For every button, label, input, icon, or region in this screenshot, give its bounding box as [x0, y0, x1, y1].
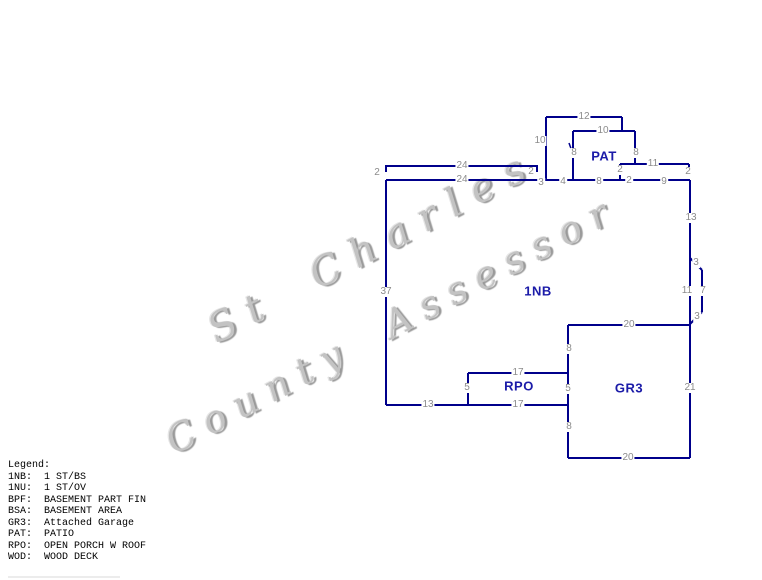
- legend-desc: WOOD DECK: [44, 552, 98, 564]
- legend-row: PAT:PATIO: [8, 529, 146, 541]
- dimension-label: 17: [511, 368, 524, 378]
- legend-row: WOD:WOOD DECK: [8, 552, 146, 564]
- dimension-label: 8: [565, 344, 573, 354]
- legend-desc: PATIO: [44, 529, 74, 541]
- legend-row: RPO:OPEN PORCH W ROOF: [8, 541, 146, 553]
- dimension-label: 13: [421, 400, 434, 410]
- dimension-label: 2: [616, 165, 624, 175]
- dimension-label: 37: [379, 287, 392, 297]
- legend-abbr: BSA:: [8, 506, 44, 518]
- dimension-label: 2: [684, 167, 692, 177]
- legend-desc: 1 ST/BS: [44, 472, 86, 484]
- legend-abbr: PAT:: [8, 529, 44, 541]
- dimension-label: 17: [511, 400, 524, 410]
- legend-desc: 1 ST/OV: [44, 483, 86, 495]
- dimension-label: 5: [564, 384, 572, 394]
- area-label: GR3: [613, 381, 645, 396]
- dimension-label: 3: [693, 312, 701, 322]
- legend-row: GR3:Attached Garage: [8, 518, 146, 530]
- dimension-label: 20: [622, 320, 635, 330]
- dimension-label: 3: [537, 178, 545, 188]
- dimension-label: 8: [565, 422, 573, 432]
- dimension-label: 11: [647, 159, 659, 169]
- dimension-label: 2: [373, 168, 381, 178]
- dimension-label: 24: [455, 175, 468, 185]
- legend-entries: 1NB:1 ST/BS1NU:1 ST/OVBPF:BASEMENT PART …: [8, 472, 146, 564]
- dimension-label: 10: [533, 136, 546, 146]
- legend-row: 1NU:1 ST/OV: [8, 483, 146, 495]
- dimension-label: 8: [632, 148, 640, 158]
- legend-abbr: 1NB:: [8, 472, 44, 484]
- dimension-label: 8: [570, 148, 578, 158]
- dimension-label: 8: [595, 177, 603, 187]
- dimension-label: 13: [684, 213, 697, 223]
- dimension-label: 4: [559, 177, 567, 187]
- dimension-label: 3: [692, 258, 700, 268]
- dimension-label: 11: [681, 286, 693, 296]
- legend-row: BPF:BASEMENT PART FIN: [8, 495, 146, 507]
- legend-abbr: RPO:: [8, 541, 44, 553]
- dimension-label: 12: [577, 112, 590, 122]
- area-label: 1NB: [522, 284, 554, 299]
- dimension-label: 20: [621, 453, 634, 463]
- area-label: PAT: [589, 149, 619, 164]
- legend-abbr: WOD:: [8, 552, 44, 564]
- legend-desc: BASEMENT PART FIN: [44, 495, 146, 507]
- legend-abbr: GR3:: [8, 518, 44, 530]
- dimension-label: 7: [699, 286, 707, 296]
- legend-title: Legend:: [8, 460, 146, 472]
- dimension-label: 24: [455, 161, 468, 171]
- legend: Legend: 1NB:1 ST/BS1NU:1 ST/OVBPF:BASEME…: [8, 460, 146, 564]
- area-label: RPO: [502, 379, 536, 394]
- legend-abbr: BPF:: [8, 495, 44, 507]
- dimension-label: 9: [660, 177, 668, 187]
- dimension-label: 10: [596, 126, 609, 136]
- dimension-label: 21: [683, 383, 696, 393]
- legend-desc: BASEMENT AREA: [44, 506, 122, 518]
- legend-abbr: 1NU:: [8, 483, 44, 495]
- dimension-label: 2: [527, 167, 535, 177]
- assessor-sketch-page: St Charles County Assessor: [0, 0, 762, 580]
- dimension-label: 2: [625, 176, 633, 186]
- legend-desc: Attached Garage: [44, 518, 134, 530]
- legend-row: BSA:BASEMENT AREA: [8, 506, 146, 518]
- legend-desc: OPEN PORCH W ROOF: [44, 541, 146, 553]
- dimension-label: 5: [463, 383, 471, 393]
- legend-row: 1NB:1 ST/BS: [8, 472, 146, 484]
